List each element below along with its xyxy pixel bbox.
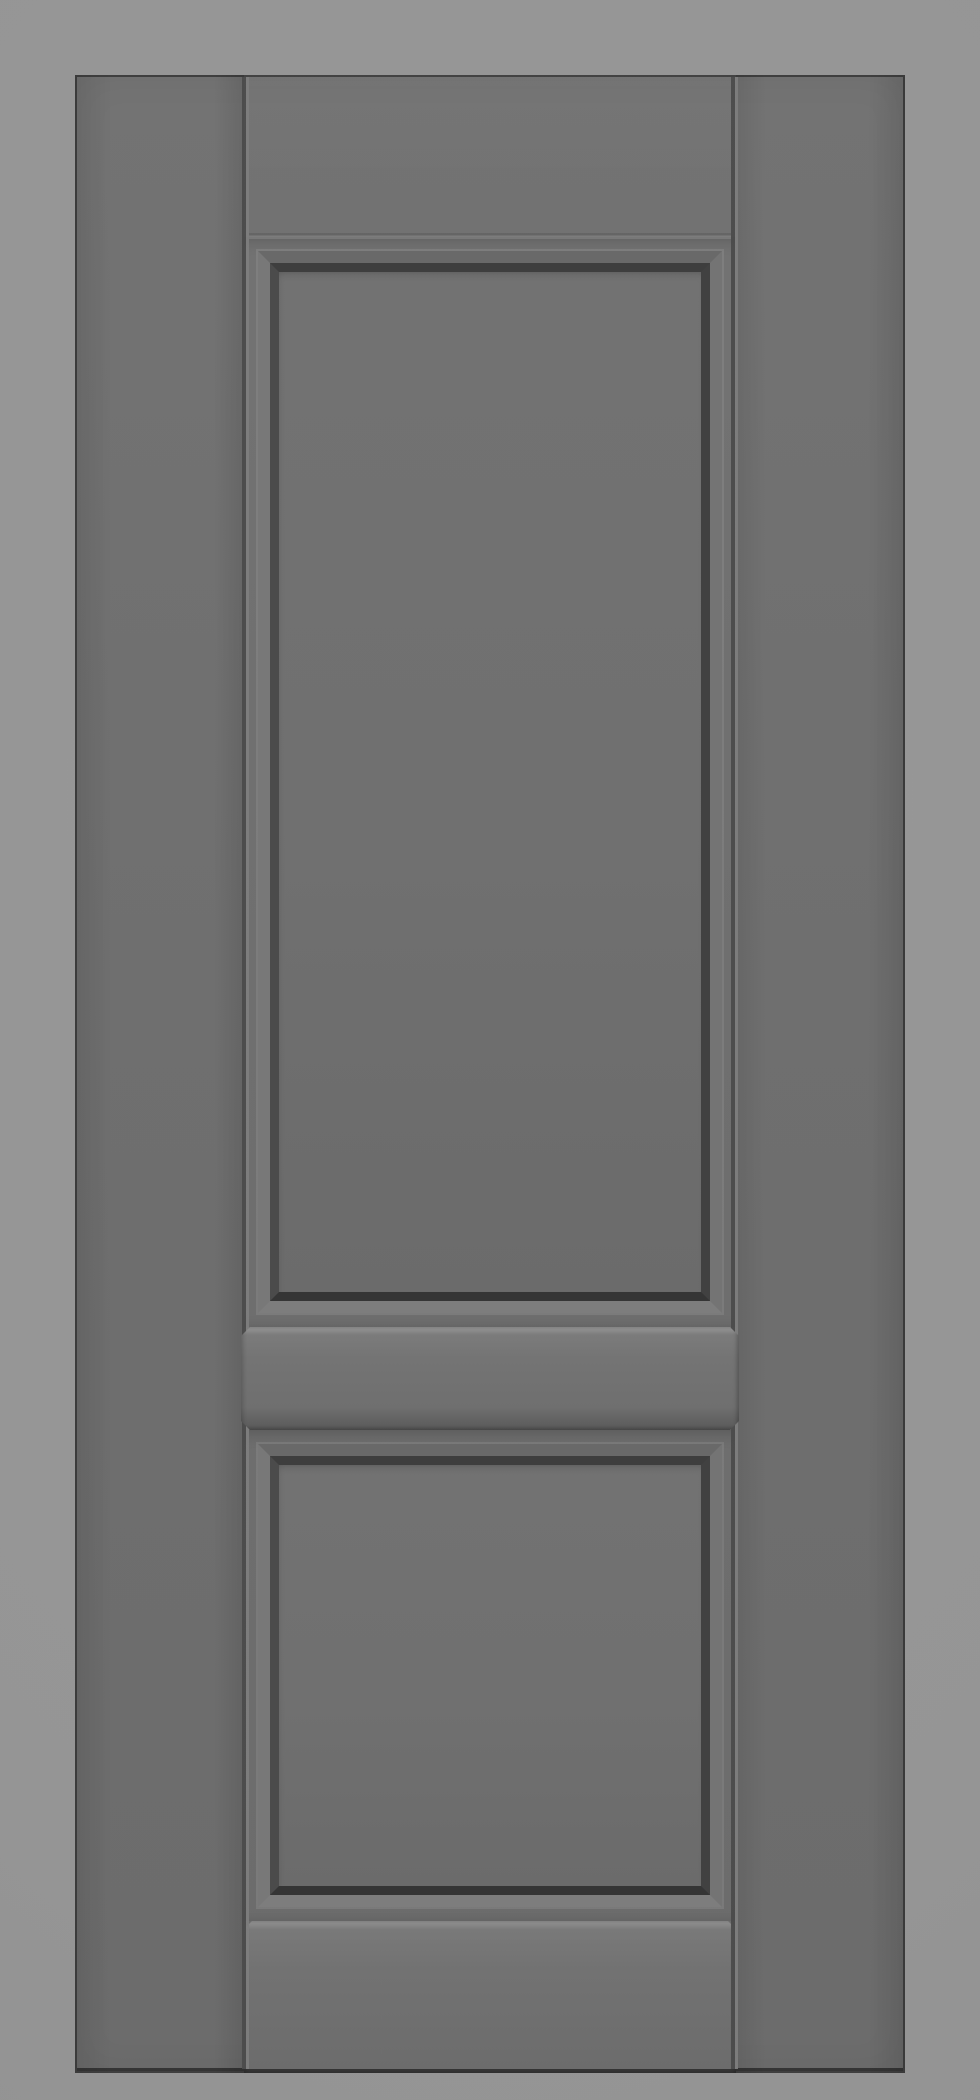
top-rail-joint bbox=[249, 233, 731, 239]
upper-panel bbox=[244, 237, 736, 1327]
backdrop bbox=[0, 0, 980, 2100]
lower-panel-molding bbox=[258, 1444, 722, 1907]
left-stile-seam bbox=[242, 77, 249, 2069]
upper-panel-molding bbox=[258, 251, 722, 1313]
top-rail bbox=[244, 75, 736, 237]
right-stile-seam bbox=[731, 77, 738, 2069]
right-stile bbox=[736, 75, 905, 2073]
upper-panel-groove bbox=[270, 263, 710, 1301]
lower-panel-groove bbox=[270, 1456, 710, 1895]
lower-panel-face bbox=[279, 1465, 701, 1886]
lock-rail bbox=[241, 1327, 739, 1430]
door bbox=[75, 75, 905, 2073]
left-stile bbox=[75, 75, 244, 2073]
bottom-rail bbox=[244, 1921, 736, 2073]
upper-panel-face bbox=[279, 272, 701, 1292]
lower-panel bbox=[244, 1430, 736, 1921]
